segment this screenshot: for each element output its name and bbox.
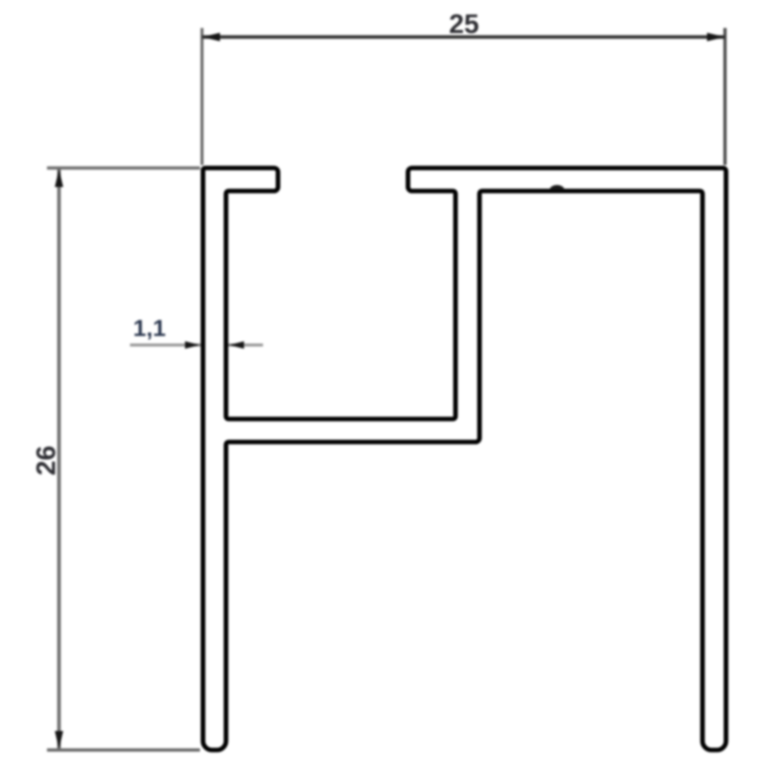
svg-text:25: 25 (449, 9, 479, 39)
svg-text:26: 26 (31, 445, 61, 475)
svg-text:1,1: 1,1 (133, 315, 166, 341)
